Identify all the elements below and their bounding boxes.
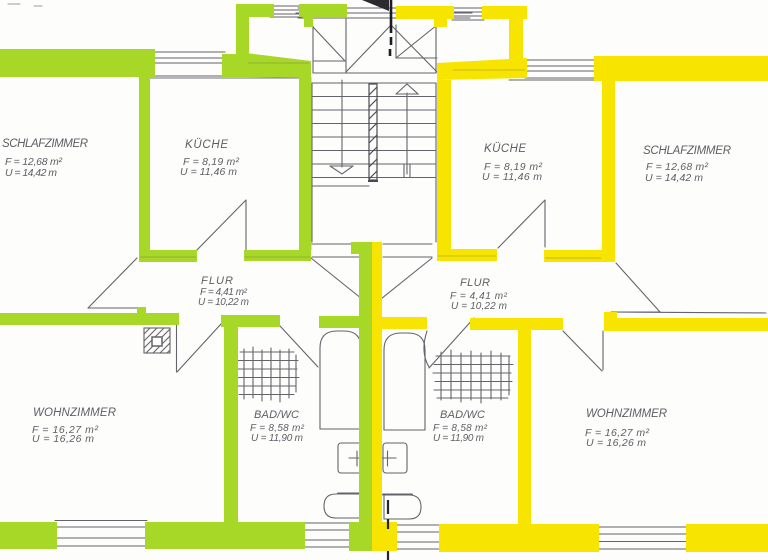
- svg-text:KÜCHE: KÜCHE: [185, 139, 228, 151]
- svg-text:U = 11,46 m: U = 11,46 m: [482, 171, 542, 183]
- svg-text:SCHLAFZIMMER: SCHLAFZIMMER: [2, 138, 88, 150]
- svg-text:FLUR: FLUR: [460, 277, 490, 289]
- svg-text:U = 10,22 m: U = 10,22 m: [451, 301, 507, 312]
- svg-text:U = 16,26 m: U = 16,26 m: [32, 433, 94, 445]
- svg-text:BAD/WC: BAD/WC: [440, 409, 485, 421]
- svg-text:SCHLAFZIMMER: SCHLAFZIMMER: [643, 145, 731, 157]
- svg-text:FLUR: FLUR: [201, 275, 233, 287]
- svg-text:U = 11,46 m: U = 11,46 m: [180, 166, 237, 178]
- svg-text:WOHNZIMMER: WOHNZIMMER: [33, 407, 116, 419]
- svg-text:U = 11,90 m: U = 11,90 m: [433, 433, 484, 444]
- svg-text:U = 10,22 m: U = 10,22 m: [198, 297, 249, 308]
- svg-text:U = 14,42 m: U = 14,42 m: [5, 167, 57, 179]
- svg-text:BAD/WC: BAD/WC: [254, 409, 299, 421]
- svg-text:KÜCHE: KÜCHE: [484, 143, 526, 155]
- svg-text:U = 14,42 m: U = 14,42 m: [645, 172, 703, 184]
- svg-text:U = 11,90 m: U = 11,90 m: [251, 433, 303, 444]
- svg-text:U = 16,26 m: U = 16,26 m: [586, 437, 646, 449]
- svg-text:WOHNZIMMER: WOHNZIMMER: [586, 408, 667, 420]
